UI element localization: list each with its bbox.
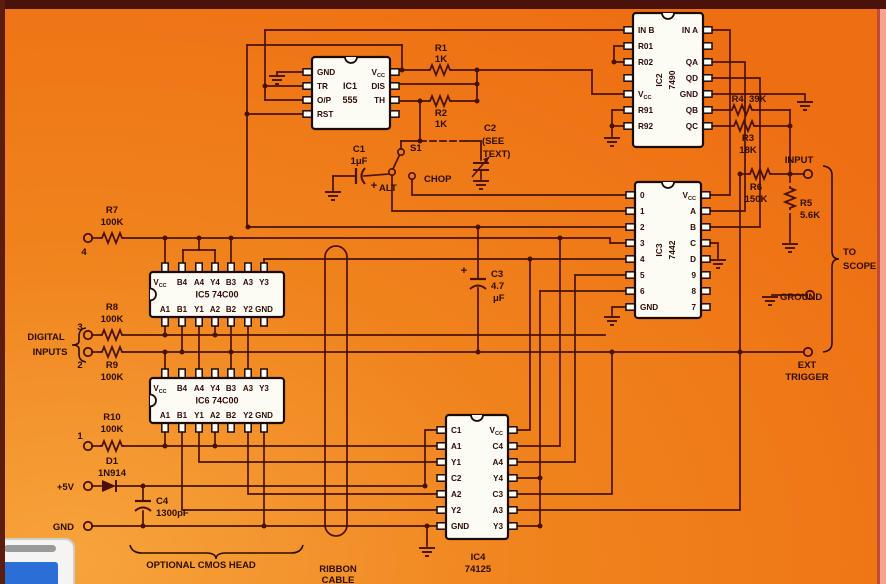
ic-pin-label: R01	[638, 42, 653, 51]
ic-pin	[626, 208, 635, 214]
label-r2: R2	[435, 108, 447, 119]
label-c3: C3	[491, 269, 503, 280]
ic-pin	[390, 111, 399, 117]
label-f: μF	[493, 293, 505, 304]
ic-center-label: 555	[342, 95, 357, 105]
ic-pin-label: B1	[177, 305, 188, 314]
ic-pin-label: Y4	[210, 384, 220, 393]
label-c2: C2	[484, 123, 496, 134]
ic-pin	[196, 317, 202, 326]
label-cable: CABLE	[322, 575, 355, 584]
label-input: INPUT	[785, 155, 814, 166]
ic-pin	[701, 208, 710, 214]
ic-pin	[508, 443, 517, 449]
ic-pin	[303, 83, 312, 89]
ic-pin	[437, 507, 446, 513]
label-18k: 18K	[739, 145, 757, 156]
label-chop: CHOP	[424, 174, 452, 185]
label-trigger: TRIGGER	[785, 372, 828, 383]
ic-pin-label: Y1	[194, 411, 204, 420]
ic-pin-label: 2	[640, 223, 645, 232]
ic-pin-label: D	[690, 255, 696, 264]
label-r7: R7	[106, 205, 118, 216]
ic-pin-label: QB	[686, 106, 698, 115]
label-100k: 100K	[101, 372, 124, 383]
ic-pin-label: QC	[686, 122, 698, 131]
ic-pin	[437, 427, 446, 433]
label-r8: R8	[106, 302, 118, 313]
ic-pin-label: C3	[493, 490, 504, 499]
ic-pin	[390, 97, 399, 103]
scan-border-left	[0, 0, 5, 584]
label-4: 4	[81, 247, 87, 258]
scan-border-right-dark	[877, 0, 880, 584]
ic-pin	[626, 224, 635, 230]
ic6-74c00: VCCA1B4B1A4Y1Y4A2B3B2A3Y2Y3GNDIC6 74C00	[150, 369, 284, 432]
ic-pin-label: 5	[640, 271, 645, 280]
ic-center-label: IC1	[343, 81, 357, 91]
label-r5: R5	[800, 198, 813, 209]
label-100k: 100K	[101, 314, 124, 325]
label-text: TEXT)	[483, 149, 510, 160]
ic-pin-label: B	[690, 223, 696, 232]
ic-pin	[701, 304, 710, 310]
ic-pin	[179, 263, 185, 272]
ic-pin	[626, 240, 635, 246]
ic-pin-label: B3	[226, 384, 237, 393]
overlay-card[interactable]	[0, 539, 74, 584]
ic-pin-label: Y2	[243, 411, 253, 420]
ic-pin-label: RST	[317, 110, 333, 119]
schematic-page: GNDVCCTRDISO/PTHRSTIC1555IN BIN AR01R02Q…	[0, 0, 886, 584]
label-optional-cmos-head: OPTIONAL CMOS HEAD	[146, 560, 256, 571]
label-150k: 150K	[745, 194, 768, 205]
junction-dot	[229, 350, 234, 355]
ic-pin	[508, 475, 517, 481]
junction-dot	[197, 236, 202, 241]
label-r10: R10	[103, 412, 120, 423]
junction-dot	[475, 82, 480, 87]
ic-pin	[626, 304, 635, 310]
ic-pin-label: Y1	[451, 458, 461, 467]
junction-dot	[738, 350, 743, 355]
overlay-blue-panel	[0, 562, 58, 584]
ic-pin-label: A3	[243, 278, 254, 287]
ic-pin	[703, 43, 712, 49]
ic-pin-label: TR	[317, 82, 328, 91]
label-ground: GROUND	[780, 292, 822, 303]
ic-pin-label: B3	[226, 278, 237, 287]
junction-dot	[788, 172, 793, 177]
junction-dot	[610, 350, 615, 355]
ic-pin-label: A1	[451, 442, 462, 451]
ic-pin	[437, 475, 446, 481]
label-100k: 100K	[101, 217, 124, 228]
ic-pin	[245, 263, 251, 272]
ic-pin-label: DIS	[371, 82, 385, 91]
junction-dot	[246, 225, 251, 230]
ic-pin	[212, 369, 218, 378]
ic-pin-label: A1	[160, 411, 171, 420]
ic-pin-label: B2	[226, 305, 237, 314]
ic-pin-label: A1	[160, 305, 171, 314]
ic-center-label: IC3	[654, 243, 664, 257]
ic-pin	[701, 272, 710, 278]
ic-pin-label: A3	[243, 384, 254, 393]
ic-notch	[662, 182, 674, 188]
ic-pin	[626, 272, 635, 278]
ic-pin	[437, 443, 446, 449]
ic-pin-label: 6	[640, 287, 645, 296]
ic-pin	[626, 192, 635, 198]
ic-pin	[261, 369, 267, 378]
ic-pin-label: 9	[691, 271, 696, 280]
scan-border-right	[880, 0, 886, 584]
label-alt: ALT	[379, 183, 397, 194]
ic2-7490: IN BIN AR01R02QAQDVCCGNDR91QBR92QCIC2749…	[624, 13, 712, 147]
junction-dot	[476, 350, 481, 355]
junction-dot	[475, 68, 480, 73]
label-1n914: 1N914	[98, 468, 127, 479]
junction-dot	[213, 444, 218, 449]
ic-pin-label: Y4	[493, 474, 503, 483]
ic-pin	[179, 423, 185, 432]
junction-dot	[400, 68, 405, 73]
ic-pin	[703, 59, 712, 65]
ic-pin	[245, 423, 251, 432]
ic-pin-label: 1	[640, 207, 645, 216]
ic-pin-label: Y2	[243, 305, 253, 314]
ic-pin-label: GND	[255, 411, 273, 420]
ic-pin-label: C	[690, 239, 696, 248]
ic-pin	[437, 491, 446, 497]
junction-dot	[141, 484, 146, 489]
ic-pin-label: B1	[177, 411, 188, 420]
ic-pin	[624, 107, 633, 113]
ic-pin	[508, 491, 517, 497]
ic-pin	[196, 423, 202, 432]
ic-pin	[703, 123, 712, 129]
label-2: 2	[77, 360, 82, 371]
label-ext: EXT	[798, 360, 817, 371]
ic-center-label: IC6 74C00	[195, 396, 238, 406]
ic-pin	[508, 459, 517, 465]
junction-dot	[788, 124, 793, 129]
ic-pin	[508, 523, 517, 529]
ic-pin-label: QA	[686, 58, 698, 67]
ic-pin	[624, 27, 633, 33]
ic-pin	[437, 459, 446, 465]
label-4-7: 4.7	[491, 281, 504, 292]
ic-pin	[261, 317, 267, 326]
overlay-gray-bar	[4, 545, 56, 552]
ic-pin-label: QD	[686, 74, 698, 83]
junction-dot	[476, 225, 481, 230]
ic1-555: GNDVCCTRDISO/PTHRSTIC1555	[303, 57, 399, 129]
junction-dot	[141, 524, 146, 529]
ic-pin-label: A4	[194, 384, 205, 393]
ic-pin	[624, 91, 633, 97]
ic-pin-label: A2	[210, 411, 221, 420]
label-scope: SCOPE	[843, 261, 876, 272]
ic-pin-label: O/P	[317, 96, 332, 105]
ic-pin-label: A2	[210, 305, 221, 314]
ic-pin	[390, 83, 399, 89]
junction-dot	[423, 484, 428, 489]
ic-pin-label: GND	[640, 303, 658, 312]
ic-pin-label: GND	[451, 522, 469, 531]
label-d1: D1	[106, 456, 119, 467]
ic-pin	[196, 263, 202, 272]
junction-dot	[213, 333, 218, 338]
ic-pin	[245, 369, 251, 378]
ic-pin	[212, 423, 218, 432]
ic-pin	[245, 317, 251, 326]
ic-pin	[701, 192, 710, 198]
label-c4: C4	[156, 496, 169, 507]
ic-pin-label: 3	[640, 239, 645, 248]
junction-dot	[262, 524, 267, 529]
junction-dot	[163, 236, 168, 241]
ic-pin	[703, 75, 712, 81]
ic-notch	[662, 13, 674, 19]
ic-pin-label: Y3	[259, 278, 269, 287]
ic-pin	[701, 256, 710, 262]
ic-pin	[303, 111, 312, 117]
ic-pin-label: R02	[638, 58, 653, 67]
junction-dot	[263, 84, 268, 89]
label-r1: R1	[435, 43, 448, 54]
ic-pin	[626, 288, 635, 294]
ic-pin	[624, 123, 633, 129]
ic-pin-label: A3	[493, 506, 504, 515]
junction-dot	[163, 333, 168, 338]
ic-pin-label: A4	[493, 458, 504, 467]
ic-center-label: 7490	[667, 70, 677, 89]
ic-pin	[228, 369, 234, 378]
ic-pin	[624, 59, 633, 65]
ic-pin	[179, 317, 185, 326]
ic-pin-label: B2	[226, 411, 237, 420]
ic-pin-label: TH	[374, 96, 385, 105]
ic-pin	[703, 91, 712, 97]
junction-dot	[475, 99, 480, 104]
ic-pin-label: 4	[640, 255, 645, 264]
label-c1: C1	[353, 144, 366, 155]
ic-pin	[626, 256, 635, 262]
ic-pin	[624, 43, 633, 49]
ic-pin	[196, 369, 202, 378]
label-1300pf: 1300pF	[156, 508, 189, 519]
label-100k: 100K	[101, 424, 124, 435]
ic-pin	[228, 423, 234, 432]
ic-pin	[162, 369, 168, 378]
label-see: (SEE	[482, 136, 504, 147]
ic-center-label: IC2	[654, 73, 664, 87]
ic-pin	[703, 27, 712, 33]
label-1k: 1K	[435, 54, 447, 65]
ic3-7442: 0VCC1A2B3C4D5968GND7IC37442	[626, 182, 710, 318]
ic-pin-label: C1	[451, 426, 462, 435]
ic-pin-label: A	[690, 207, 696, 216]
ic-pin	[261, 263, 267, 272]
ic-pin-label: 7	[691, 303, 696, 312]
junction-dot	[180, 350, 185, 355]
scan-border-top	[0, 0, 886, 9]
label-1: 1	[77, 431, 83, 442]
ic-pin	[390, 69, 399, 75]
ic-pin	[303, 69, 312, 75]
junction-dot	[245, 112, 250, 117]
junction-dot	[528, 257, 533, 262]
ic-pin	[508, 507, 517, 513]
ic-pin	[437, 523, 446, 529]
label-digital: DIGITAL	[27, 332, 64, 343]
ic-pin-label: B4	[177, 384, 188, 393]
ic-notch	[150, 395, 156, 407]
label-r4-39k: R4, 39K	[732, 94, 767, 105]
label-gnd: GND	[53, 522, 74, 533]
ic-pin-label: Y3	[259, 384, 269, 393]
junction-dot	[425, 524, 430, 529]
ic-pin	[701, 288, 710, 294]
ic-pin-label: Y3	[493, 522, 503, 531]
ic-pin-label: C4	[493, 442, 504, 451]
ic5-74c00: VCCA1B4B1A4Y1Y4A2B3B2A3Y2Y3GNDIC5 74C00	[150, 263, 284, 326]
label-txt: +	[461, 265, 467, 277]
ic-notch	[150, 289, 156, 301]
junction-dot	[558, 236, 563, 241]
ic-pin	[701, 224, 710, 230]
label-to: TO	[843, 247, 856, 258]
ic-pin-label: GND	[255, 305, 273, 314]
ic-pin	[162, 423, 168, 432]
ic-pin-label: Y2	[451, 506, 461, 515]
ic-pin	[701, 240, 710, 246]
ic-pin	[508, 427, 517, 433]
ic-pin	[162, 317, 168, 326]
junction-dot	[538, 524, 543, 529]
ic-pin-label: GND	[317, 68, 335, 77]
ic-pin	[212, 317, 218, 326]
ic-pin-label: 0	[640, 191, 645, 200]
ic-pin	[212, 263, 218, 272]
ic-notch	[345, 57, 357, 63]
label-5-6k: 5.6K	[800, 210, 820, 221]
ic-pin	[228, 317, 234, 326]
junction-dot	[418, 99, 423, 104]
label-74125: 74125	[465, 564, 492, 575]
ic-pin-label: IN B	[638, 26, 654, 35]
junction-dot	[538, 476, 543, 481]
ic-pin-label: B4	[177, 278, 188, 287]
ic-pin-label: A2	[451, 490, 462, 499]
ic-pin	[261, 423, 267, 432]
ic-pin	[162, 263, 168, 272]
ic-notch	[471, 415, 483, 421]
ic-pin	[624, 75, 633, 81]
ic-pin-label: GND	[680, 90, 698, 99]
label-ribbon: RIBBON	[319, 564, 357, 575]
label-txt: +	[371, 180, 377, 192]
ic-pin-label: Y1	[194, 305, 204, 314]
ic-pin	[703, 107, 712, 113]
label-r3: R3	[742, 133, 754, 144]
ic4-74125: C1VCCA1C4Y1A4C2Y4A2C3Y2A3GNDY3	[437, 415, 517, 539]
ic-pin-label: C2	[451, 474, 462, 483]
label-r9: R9	[106, 360, 118, 371]
label-5v: +5V	[57, 482, 75, 493]
junction-dot	[610, 124, 615, 129]
junction-dot	[612, 60, 617, 65]
label-r6: R6	[750, 182, 762, 193]
junction-dot	[163, 444, 168, 449]
ic-center-label: IC5 74C00	[195, 290, 238, 300]
label-inputs: INPUTS	[33, 347, 68, 358]
ic-pin-label: R91	[638, 106, 653, 115]
junction-dot	[229, 236, 234, 241]
ic-pin-label: 8	[691, 287, 696, 296]
ic-pin-label: Y4	[210, 278, 220, 287]
ic-pin-label: IN A	[682, 26, 698, 35]
schematic-canvas: GNDVCCTRDISO/PTHRSTIC1555IN BIN AR01R02Q…	[0, 0, 886, 584]
label-1k: 1K	[435, 119, 447, 130]
ic-pin	[179, 369, 185, 378]
ic-pin-label: R92	[638, 122, 653, 131]
junction-dot	[163, 350, 168, 355]
ic-pin	[303, 97, 312, 103]
junction-dot	[738, 172, 743, 177]
ic-center-label: 7442	[667, 240, 677, 259]
label-1-f: 1μF	[351, 156, 368, 167]
ic-pin-label: A4	[194, 278, 205, 287]
ic-pin	[228, 263, 234, 272]
label-ic4: IC4	[471, 552, 487, 563]
label-s1: S1	[410, 143, 422, 154]
